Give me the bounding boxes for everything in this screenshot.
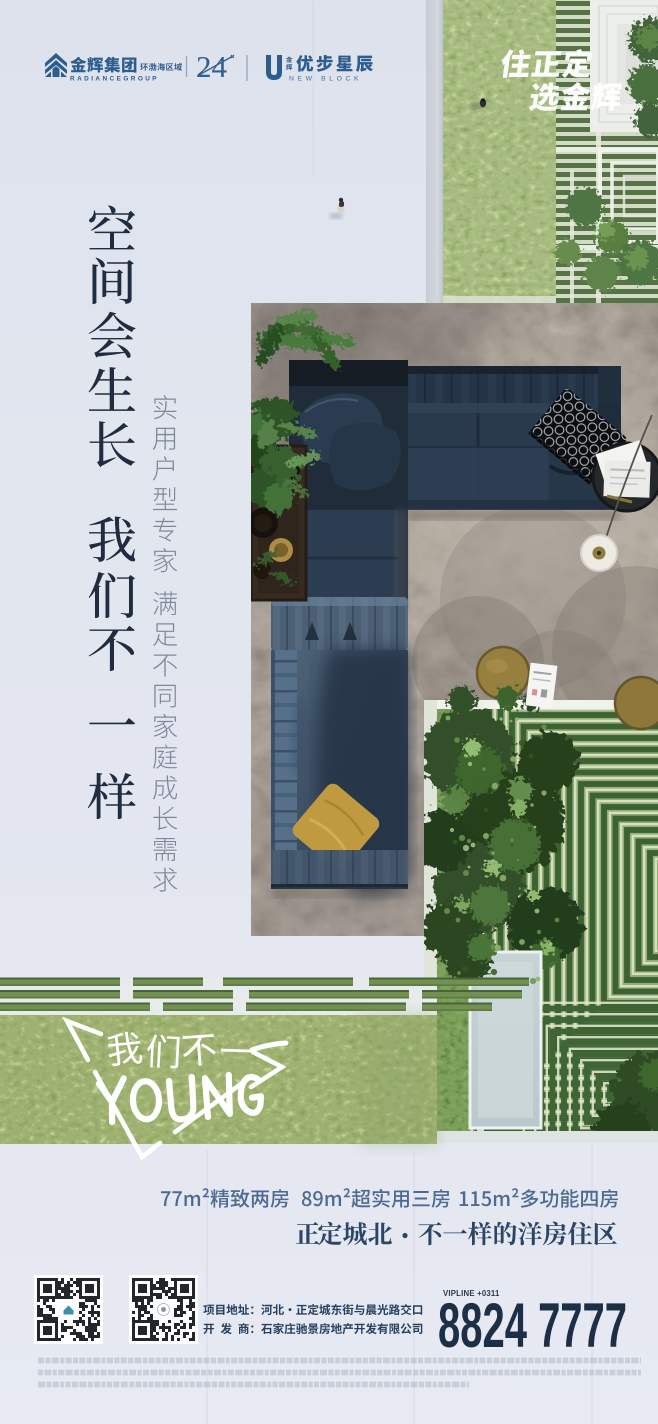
svg-text:8824 7777: 8824 7777 [438, 1291, 627, 1362]
svg-text:RADIANCEGROUP: RADIANCEGROUP [70, 76, 159, 83]
svg-text:NEW BLOCK: NEW BLOCK [289, 76, 362, 83]
svg-text:24: 24 [196, 49, 228, 84]
